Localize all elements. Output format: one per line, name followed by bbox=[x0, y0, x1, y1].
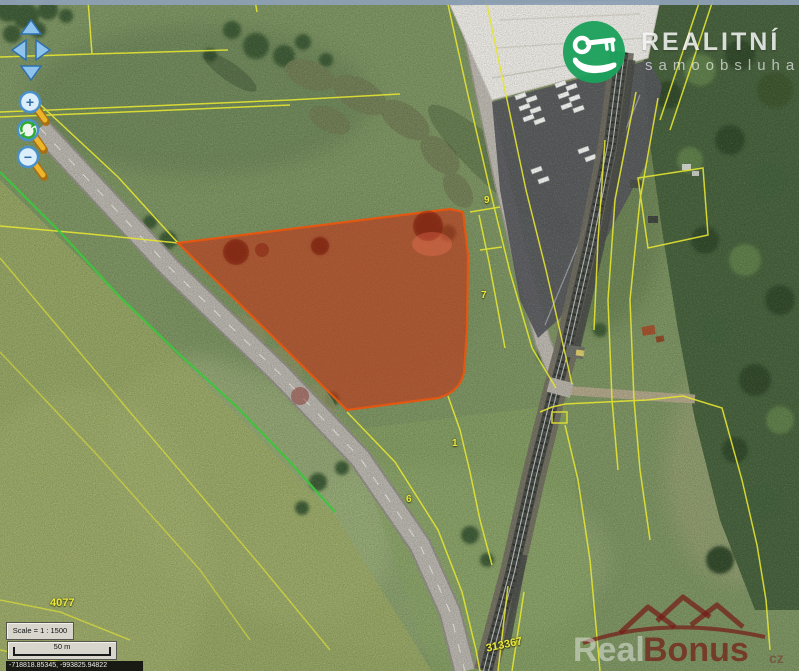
parcel-label-4077: 4077 bbox=[50, 598, 74, 609]
pan-left-button[interactable] bbox=[12, 40, 26, 60]
brand-logo bbox=[561, 19, 627, 85]
parcel-label-7: 7 bbox=[481, 291, 487, 301]
zoom-out-button[interactable]: − bbox=[18, 147, 44, 177]
map-tools: + − bbox=[10, 86, 58, 182]
watermark-real-text: Real bbox=[573, 631, 645, 669]
plus-icon: + bbox=[26, 94, 34, 110]
map-top-edge-strip bbox=[0, 0, 799, 5]
watermark-tld-text: cz bbox=[769, 650, 784, 666]
parcel-label-6: 6 bbox=[406, 495, 412, 505]
pan-compass bbox=[8, 14, 72, 82]
watermark-bonus-text: Bonus bbox=[643, 631, 749, 669]
brand-title: REALITNÍ bbox=[641, 28, 780, 57]
aerial-map bbox=[0, 0, 799, 671]
pan-down-button[interactable] bbox=[21, 66, 41, 80]
pan-up-button[interactable] bbox=[21, 20, 41, 34]
scale-box: Scale = 1 : 1500 bbox=[6, 622, 74, 640]
map-viewport[interactable]: 4077 9 7 1 6 313367 + bbox=[0, 0, 799, 671]
parcel-label-9: 9 bbox=[484, 196, 490, 206]
scale-bar: 50 m bbox=[7, 641, 117, 660]
brand-subtitle: samoobsluha bbox=[645, 57, 799, 74]
pan-right-button[interactable] bbox=[36, 40, 50, 60]
realbonus-watermark: Real Bonus cz bbox=[565, 585, 799, 671]
parcel-label-1: 1 bbox=[452, 439, 458, 449]
minus-icon: − bbox=[24, 149, 32, 165]
zoom-in-button[interactable]: + bbox=[20, 92, 46, 122]
scale-bar-bracket bbox=[13, 647, 111, 656]
coordinates-readout: -718818.85345, -993825.94822 bbox=[6, 661, 143, 671]
refresh-button[interactable] bbox=[18, 120, 44, 150]
